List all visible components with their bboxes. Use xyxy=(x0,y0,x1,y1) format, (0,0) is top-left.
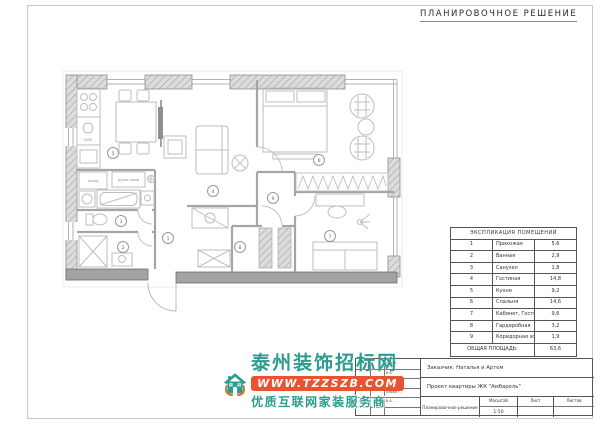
table-row: 1Прихожая5,6 xyxy=(451,239,577,251)
total-area: 63,6 xyxy=(535,343,577,356)
sheets-value xyxy=(554,407,594,418)
watermark-tagline: 优质互联网家装服务商 xyxy=(251,393,404,410)
sheet-value xyxy=(518,407,553,418)
left-wall xyxy=(65,75,79,280)
bedroom-furniture xyxy=(263,88,374,160)
svg-text:9: 9 xyxy=(272,196,275,202)
room-marker-6: 6 xyxy=(314,155,325,166)
drawing-name-field: Планировочное решение xyxy=(421,397,479,417)
room-marker-2: 2 xyxy=(118,242,129,253)
watermark-site-name: 泰州装饰招标网 xyxy=(251,354,404,374)
room-marker-5: 5 xyxy=(108,148,119,159)
table-row: 6Спальня14,6 xyxy=(451,297,577,309)
oven-label: духов. шкаф xyxy=(118,178,140,182)
house-logo-icon xyxy=(224,352,246,418)
table-row: 4Гостиная14,8 xyxy=(451,274,577,286)
table-row: 7Кабинет, Гостевая, Детская9,6 xyxy=(451,309,577,321)
table-row: 5Кухня9,2 xyxy=(451,285,577,297)
svg-text:3: 3 xyxy=(120,219,123,225)
room-marker-4: 4 xyxy=(208,186,219,197)
fridge-label: холод xyxy=(88,179,99,183)
wardrobe-shelves xyxy=(259,228,291,268)
hall-furniture xyxy=(192,208,230,267)
svg-text:5: 5 xyxy=(112,151,115,157)
table-row: 2Ванная2,9 xyxy=(451,251,577,263)
total-row: ОБЩАЯ ПЛОЩАДЬ:63,6 xyxy=(451,343,577,356)
kitchen-furniture xyxy=(77,88,163,168)
table-row: 8Гардеробная3,2 xyxy=(451,320,577,332)
dishwasher-label: D/W xyxy=(84,138,92,142)
total-label: ОБЩАЯ ПЛОЩАДЬ: xyxy=(451,343,535,356)
scale-column: Масштаб 1:50 xyxy=(479,397,517,417)
svg-text:8: 8 xyxy=(239,245,242,251)
drawing-sheet: ПЛАНИРОВОЧНОЕ РЕШЕНИЕ xyxy=(0,0,600,424)
explication-title: ЭКСПЛИКАЦИЯ ПОМЕЩЕНИЙ xyxy=(451,228,577,240)
table-row: 3Санузел1,8 xyxy=(451,262,577,274)
svg-text:2: 2 xyxy=(122,245,125,251)
room-marker-8: 8 xyxy=(235,242,246,253)
sheets-column: Листов xyxy=(553,397,594,417)
watermark-url: WWW.TZZSZB.COM xyxy=(251,376,404,391)
explication-table: ЭКСПЛИКАЦИЯ ПОМЕЩЕНИЙ 1Прихожая5,6 2Ванн… xyxy=(450,227,577,357)
bathroom-fixtures xyxy=(79,190,154,267)
cabinet-room-furniture xyxy=(313,194,377,270)
scale-value: 1:50 xyxy=(480,407,517,418)
sheets-label: Листов xyxy=(554,397,594,407)
table-row: 9Коридорная зона1,9 xyxy=(451,332,577,344)
room-marker-7: 7 xyxy=(325,231,336,242)
svg-text:7: 7 xyxy=(329,234,332,240)
living-furniture xyxy=(164,126,248,174)
room-marker-1: 1 xyxy=(163,233,174,244)
watermark-logo: 泰州装饰招标网 WWW.TZZSZB.COM 优质互联网家装服务商 xyxy=(224,352,404,424)
svg-text:4: 4 xyxy=(212,189,215,195)
svg-text:1: 1 xyxy=(167,236,170,242)
sheet-label: Лист xyxy=(518,397,553,407)
room-marker-9: 9 xyxy=(268,193,279,204)
bedroom-closet xyxy=(296,173,388,191)
sheet-column: Лист xyxy=(517,397,553,417)
client-field: Заказчик: Наталья и Артем xyxy=(421,359,594,378)
project-field: Проект квартиры ЖК "Амбарель" xyxy=(421,378,594,397)
room-marker-3: 3 xyxy=(116,216,127,227)
scale-label: Масштаб xyxy=(480,397,517,407)
svg-text:6: 6 xyxy=(318,158,321,164)
